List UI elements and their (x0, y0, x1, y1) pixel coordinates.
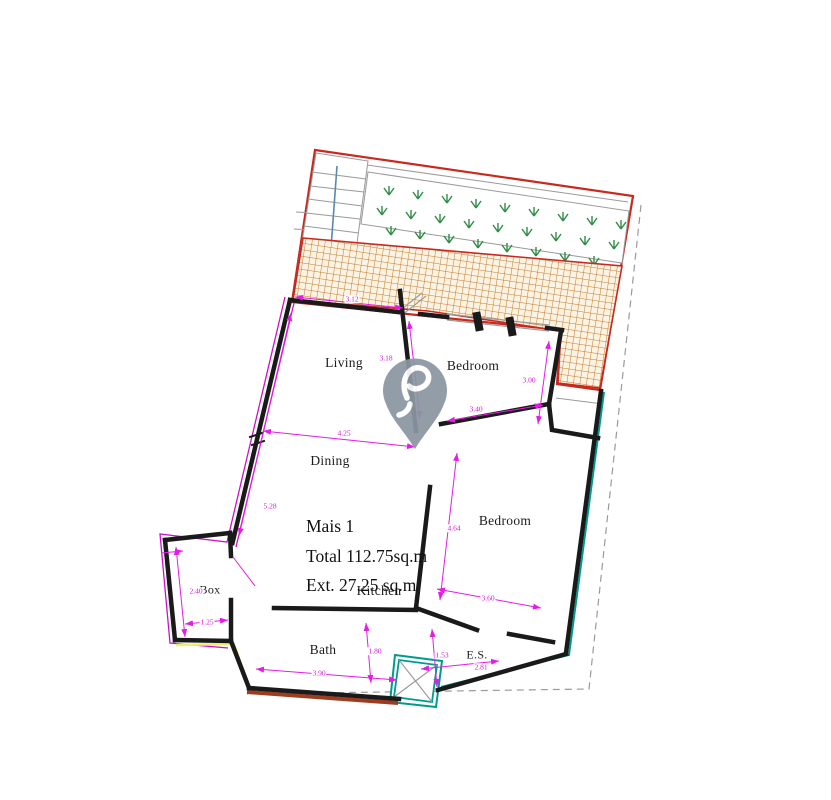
room-label-bedroom-right: Bedroom (479, 513, 531, 529)
dim-living-depth: 3.18 (378, 354, 393, 362)
room-label-es: E.S. (466, 648, 487, 663)
dim-box-depth: 2.40 (188, 587, 203, 595)
dim-bedroom-top-depth: 3.00 (521, 376, 536, 384)
room-label-living: Living (325, 355, 363, 371)
dim-bath-width: 3.90 (311, 669, 326, 677)
dim-bath-depth: 1.80 (367, 647, 382, 655)
shaft-symbol (394, 660, 437, 702)
room-label-dining: Dining (310, 453, 349, 469)
room-label-bedroom-top: Bedroom (447, 358, 499, 374)
dim-dining-depth: 5.28 (262, 502, 277, 510)
location-pin-icon (383, 358, 447, 449)
room-label-bath: Bath (310, 642, 337, 658)
dim-bedroom-right-width: 3.60 (480, 594, 495, 602)
dim-living-width: 3.12 (344, 295, 359, 303)
magenta-outline (160, 297, 294, 648)
dim-dining-width: 4.25 (336, 429, 351, 437)
dim-bedroom-top-width: 3.40 (468, 405, 483, 413)
walls (165, 291, 601, 699)
plan-ext-area: Ext. 27.25 sq.m (306, 575, 416, 596)
dim-es-depth: 1.53 (434, 651, 449, 659)
dim-box-width: 1.25 (199, 618, 214, 626)
floor-plan-canvas: Living Bedroom Dining Bedroom Kitchen Ba… (0, 0, 831, 800)
plan-total-area: Total 112.75sq.m (306, 546, 427, 567)
floor-plan-drawing (0, 0, 831, 800)
dim-es-width: 2.81 (473, 663, 488, 671)
plan-title: Mais 1 (306, 516, 354, 537)
dim-bedroom-right-depth: 4.64 (446, 524, 461, 532)
